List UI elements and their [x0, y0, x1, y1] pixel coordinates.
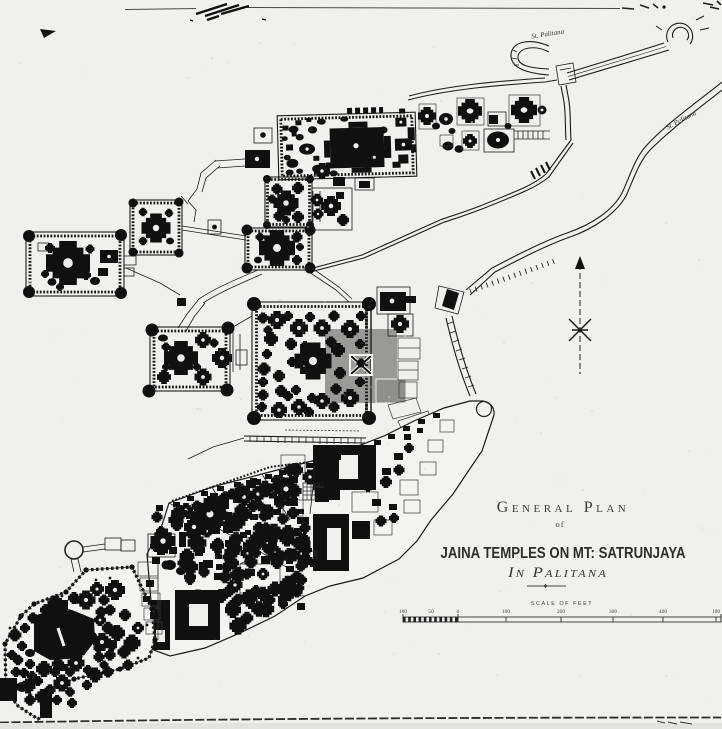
svg-text:300: 300: [609, 609, 618, 615]
svg-text:50: 50: [428, 609, 434, 615]
svg-text:200: 200: [557, 609, 566, 615]
svg-text:JAINA TEMPLES ON MT: SATRUNJAY: JAINA TEMPLES ON MT: SATRUNJAYA: [441, 545, 686, 562]
svg-text:In Palitana: In Palitana: [507, 565, 608, 581]
svg-text:100: 100: [712, 609, 721, 615]
svg-text:SCALE OF FEET: SCALE OF FEET: [531, 601, 593, 607]
svg-text:400: 400: [659, 609, 668, 615]
svg-text:100: 100: [502, 609, 511, 615]
svg-text:of: of: [555, 519, 564, 529]
svg-text:General Plan: General Plan: [497, 499, 629, 516]
